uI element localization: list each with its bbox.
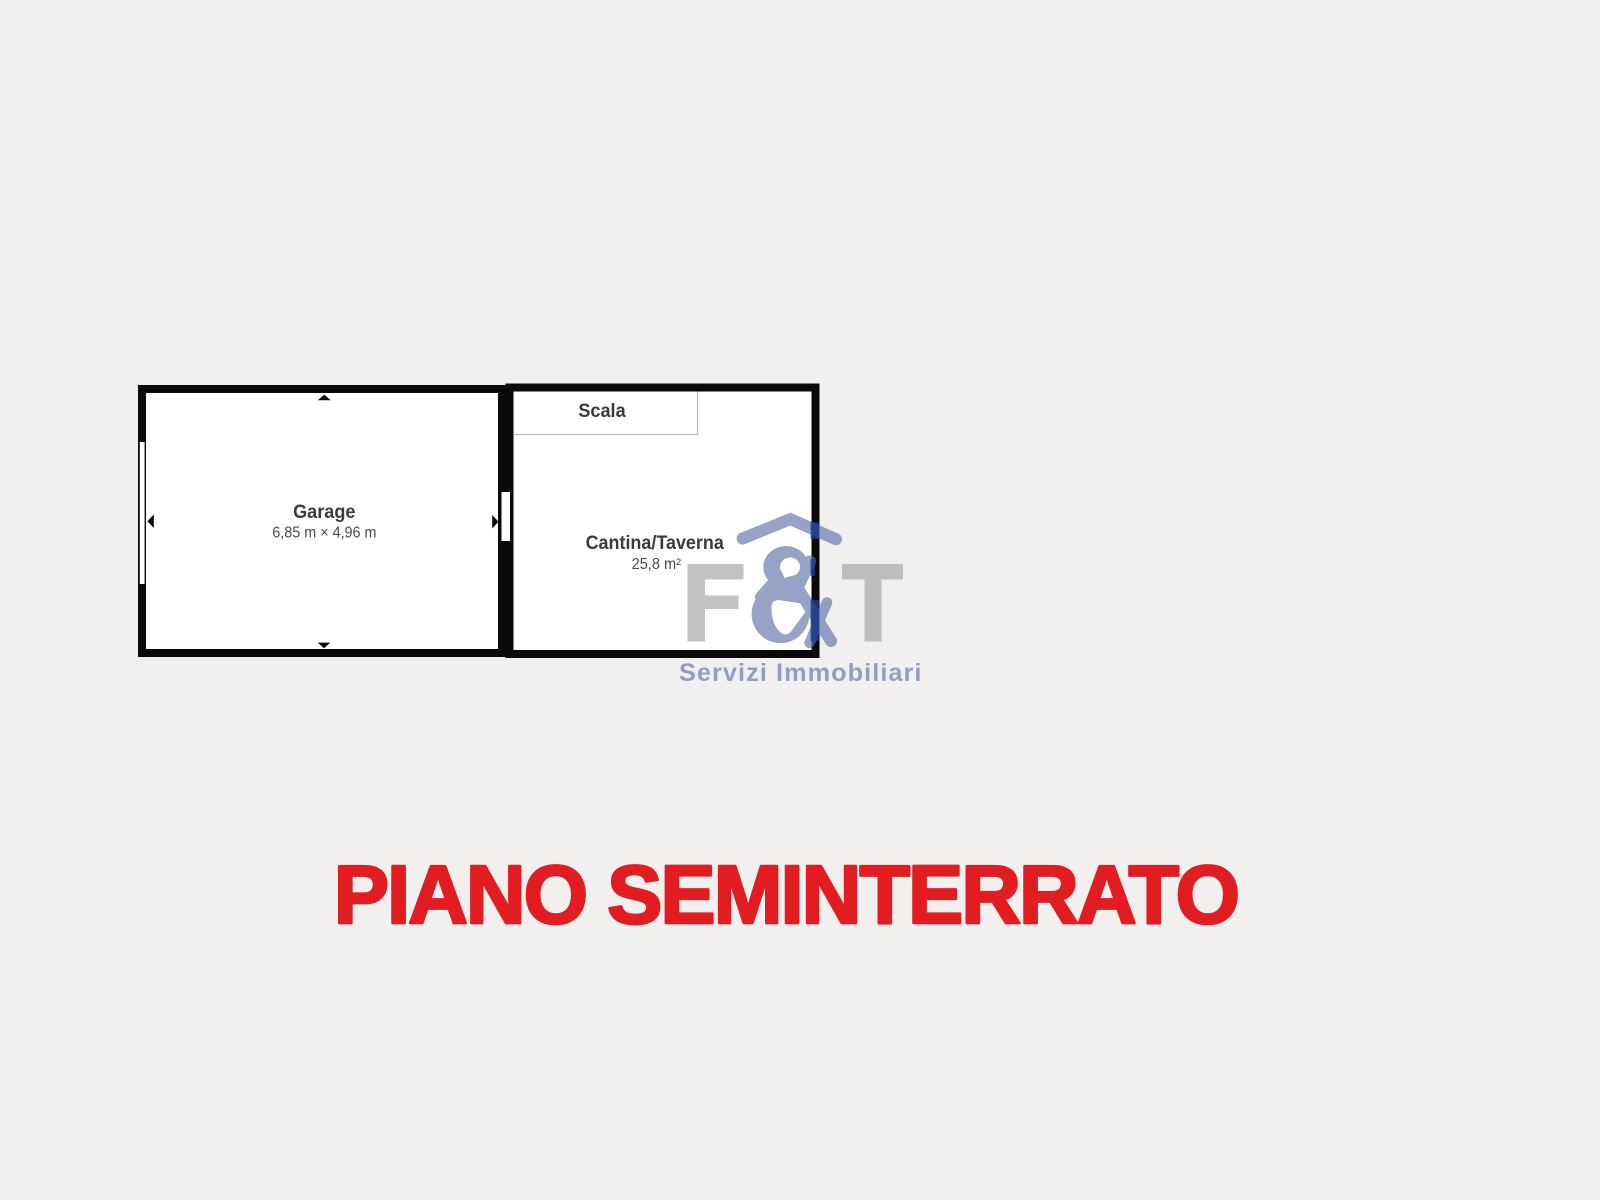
svg-text:Scala: Scala <box>578 400 626 422</box>
svg-text:Servizi Immobiliari: Servizi Immobiliari <box>679 659 922 687</box>
svg-text:Garage: Garage <box>293 501 355 523</box>
svg-text:6,85 m × 4,96 m: 6,85 m × 4,96 m <box>272 525 376 541</box>
svg-text:PIANO SEMINTERRATO: PIANO SEMINTERRATO <box>334 849 1238 941</box>
svg-text:Cantina/Taverna: Cantina/Taverna <box>586 531 725 553</box>
svg-text:25,8 m²: 25,8 m² <box>632 556 681 574</box>
